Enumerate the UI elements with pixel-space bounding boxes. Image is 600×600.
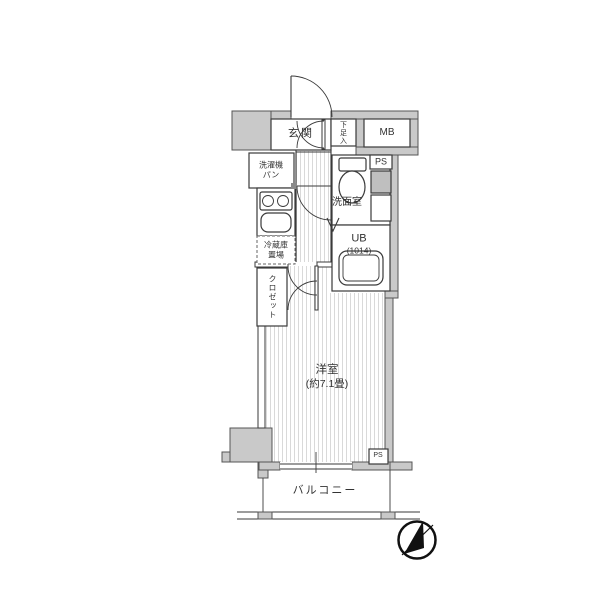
label-entrance: 玄関 bbox=[288, 127, 314, 140]
label-unit-bath-name: UB bbox=[347, 232, 372, 245]
label-washer-pan-line1: 洗濯機 bbox=[259, 160, 283, 170]
washroom-door bbox=[291, 183, 331, 220]
label-pipe-space-bottom: PS bbox=[373, 452, 382, 460]
label-unit-bath: UB (1014) bbox=[347, 232, 372, 255]
label-room-name: 洋室 bbox=[306, 364, 349, 378]
label-unit-bath-size: (1014) bbox=[347, 246, 372, 256]
label-fridge-line2: 置場 bbox=[264, 250, 288, 260]
label-room-size: (約7.1畳) bbox=[306, 378, 349, 391]
corridor-lines bbox=[296, 150, 331, 262]
label-fridge-space: 冷蔵庫 置場 bbox=[264, 240, 288, 259]
label-washer-pan-line2: パン bbox=[259, 170, 283, 180]
label-closet: クロゼット bbox=[268, 275, 276, 320]
label-pipe-space-top: PS bbox=[375, 157, 387, 168]
kitchen-icon bbox=[257, 188, 295, 236]
compass-icon bbox=[399, 521, 436, 559]
entrance-door bbox=[291, 76, 332, 117]
label-shoe-box: 下足入 bbox=[340, 121, 347, 145]
label-washer-pan: 洗濯機 パン bbox=[259, 160, 283, 179]
floor-plan-graphics bbox=[0, 0, 600, 600]
label-meter-box: MB bbox=[380, 127, 395, 139]
label-fridge-line1: 冷蔵庫 bbox=[264, 240, 288, 250]
label-washroom: 洗面室 bbox=[332, 197, 362, 209]
label-room: 洋室 (約7.1畳) bbox=[306, 364, 349, 390]
balcony-window bbox=[280, 452, 352, 473]
label-balcony: バルコニー bbox=[293, 484, 358, 497]
floor-plan: 玄関 下足入 MB PS 洗濯機 パン 洗面室 UB (1014) 冷蔵庫 置場… bbox=[0, 0, 600, 600]
room-doors bbox=[288, 266, 318, 310]
